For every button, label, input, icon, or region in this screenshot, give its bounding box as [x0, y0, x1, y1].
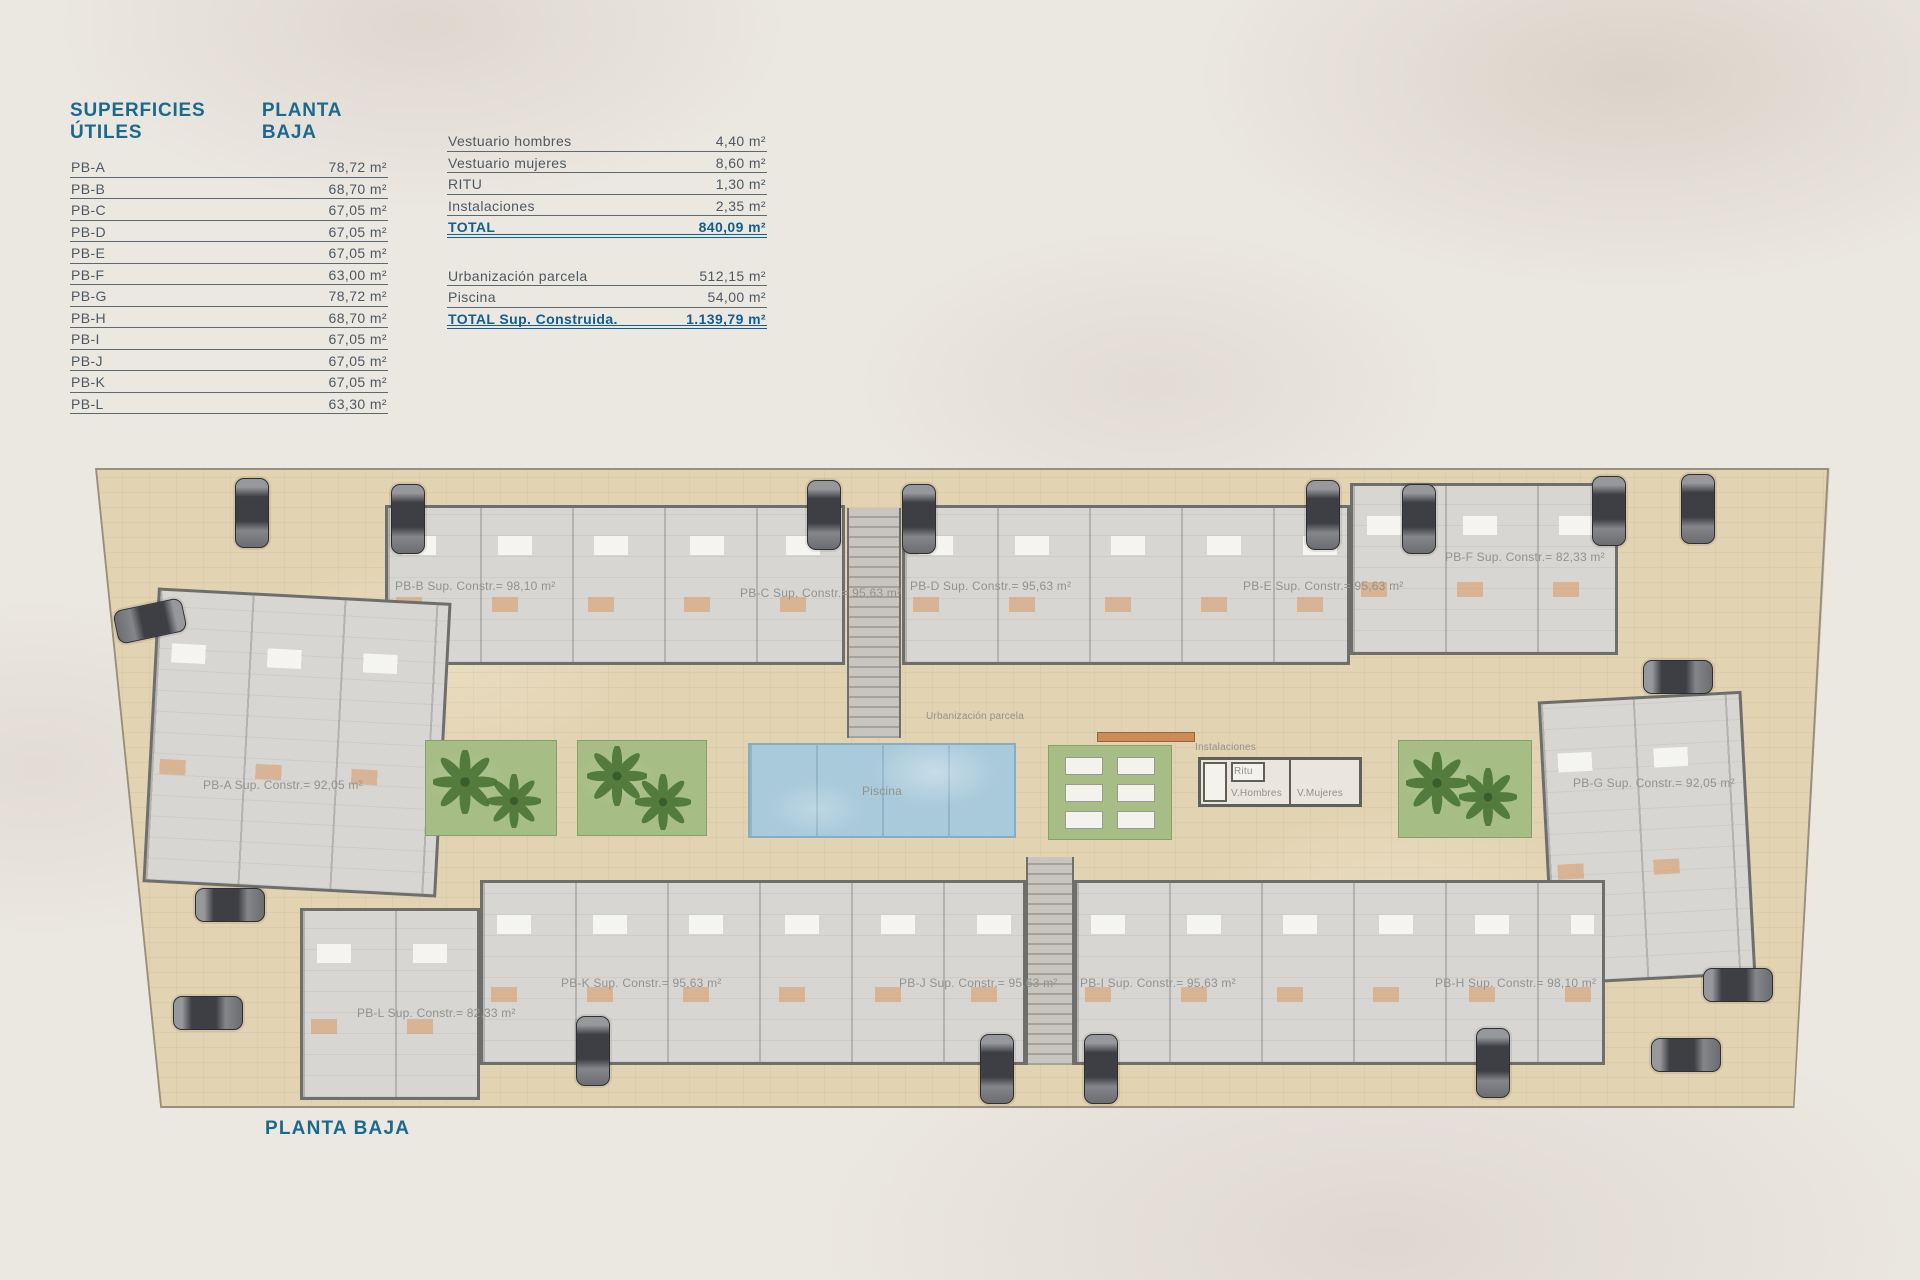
row-label: Vestuario hombres: [448, 133, 572, 149]
pool: Piscina: [748, 743, 1016, 838]
car: [1402, 484, 1436, 554]
row-value: 54,00 m²: [708, 289, 766, 305]
row-label: PB-H: [71, 310, 106, 326]
page-title: PLANTA BAJA: [265, 1118, 410, 1140]
car: [1476, 1028, 1510, 1098]
car: [1084, 1034, 1118, 1104]
unit-label-pb-l: PB-L Sup. Constr.= 82,33 m²: [357, 1006, 516, 1020]
table-row: Urbanización parcela512,15 m²: [447, 265, 767, 287]
ritu-label: Ritu: [1234, 766, 1253, 777]
useful-areas-subtitle: PLANTA BAJA: [262, 100, 388, 144]
car: [1703, 968, 1773, 1002]
row-value: 67,05 m²: [329, 202, 387, 218]
unit-label-pb-f: PB-F Sup. Constr.= 82,33 m²: [1445, 550, 1605, 564]
sun-lounger: [1065, 757, 1103, 775]
row-label: PB-C: [71, 202, 106, 218]
bench: [1097, 732, 1195, 742]
urbanizacion-label: Urbanización parcela: [865, 711, 1085, 722]
table-row: PB-K67,05 m²: [70, 371, 388, 393]
table-row: PB-D67,05 m²: [70, 221, 388, 243]
sun-lounger: [1117, 811, 1155, 829]
stair-corridor-bottom: [1026, 857, 1074, 1065]
row-label: Urbanización parcela: [448, 268, 588, 284]
row-label: PB-B: [71, 181, 105, 197]
car: [173, 996, 243, 1030]
table-row: PB-G78,72 m²: [70, 285, 388, 307]
total-label: TOTAL Sup. Construida.: [448, 311, 618, 327]
car: [1681, 474, 1715, 544]
vestuario-mujeres-label: V.Mujeres: [1297, 788, 1343, 799]
sun-lounger: [1117, 784, 1155, 802]
useful-areas-header: SUPERFICIES ÚTILES PLANTA BAJA: [70, 100, 388, 144]
unit-label-pb-j: PB-J Sup. Constr.= 95,63 m²: [899, 976, 1057, 990]
row-label: PB-D: [71, 224, 106, 240]
table-row: PB-H68,70 m²: [70, 307, 388, 329]
row-value: 63,30 m²: [329, 396, 387, 412]
plan-sheet: SUPERFICIES ÚTILES PLANTA BAJA PB-A78,72…: [0, 0, 1920, 1280]
row-label: PB-I: [71, 331, 100, 347]
floor-plan: Piscina Instalaciones Ritu V.Hombres V.M…: [95, 468, 1830, 1108]
table-row: PB-A78,72 m²: [70, 156, 388, 178]
unit-label-pb-b: PB-B Sup. Constr.= 98,10 m²: [395, 579, 555, 593]
row-label: PB-K: [71, 374, 105, 390]
pool-label: Piscina: [862, 784, 902, 798]
row-label: PB-F: [71, 267, 105, 283]
row-label: Instalaciones: [448, 198, 535, 214]
sun-lounger: [1065, 784, 1103, 802]
facilities-block: Ritu V.Hombres V.Mujeres: [1198, 757, 1362, 807]
car: [195, 888, 265, 922]
row-value: 67,05 m²: [329, 374, 387, 390]
table-row: PB-F63,00 m²: [70, 264, 388, 286]
unit-label-pb-d: PB-D Sup. Constr.= 95,63 m²: [910, 579, 1071, 593]
unit-block-i-h: [1074, 880, 1605, 1065]
table-row: PB-C67,05 m²: [70, 199, 388, 221]
total-row: TOTAL840,09 m²: [447, 216, 767, 238]
total-value: 1.139,79 m²: [686, 311, 766, 327]
table-row: Vestuario mujeres8,60 m²: [447, 152, 767, 174]
row-value: 8,60 m²: [716, 155, 766, 171]
table-row: PB-J67,05 m²: [70, 350, 388, 372]
row-value: 67,05 m²: [329, 353, 387, 369]
row-label: Vestuario mujeres: [448, 155, 567, 171]
row-value: 63,00 m²: [329, 267, 387, 283]
unit-block-f: [1350, 483, 1618, 655]
total-value: 840,09 m²: [699, 219, 766, 235]
car: [807, 480, 841, 550]
row-value: 67,05 m²: [329, 224, 387, 240]
palm-tree-icon: [487, 774, 541, 828]
table-row: PB-I67,05 m²: [70, 328, 388, 350]
total-row: TOTAL Sup. Construida.1.139,79 m²: [447, 308, 767, 330]
unit-label-pb-k: PB-K Sup. Constr.= 95,63 m²: [561, 976, 721, 990]
row-value: 512,15 m²: [699, 268, 766, 284]
sun-lounger-area: [1048, 745, 1172, 840]
useful-areas-table: SUPERFICIES ÚTILES PLANTA BAJA PB-A78,72…: [70, 100, 388, 414]
car: [576, 1016, 610, 1086]
table-row: Vestuario hombres4,40 m²: [447, 130, 767, 152]
row-value: 2,35 m²: [716, 198, 766, 214]
row-label: PB-E: [71, 245, 105, 261]
unit-label-pb-c: PB-C Sup. Constr.= 95,63 m²: [740, 586, 901, 600]
row-value: 1,30 m²: [716, 176, 766, 192]
row-label: Piscina: [448, 289, 496, 305]
unit-label-pb-g: PB-G Sup. Constr.= 92,05 m²: [1573, 776, 1735, 790]
palm-tree-icon: [635, 774, 691, 830]
row-label: PB-J: [71, 353, 103, 369]
row-value: 4,40 m²: [716, 133, 766, 149]
table-row: PB-B68,70 m²: [70, 178, 388, 200]
stair-corridor-top: [847, 508, 901, 738]
unit-label-pb-i: PB-I Sup. Constr.= 95,63 m²: [1080, 976, 1236, 990]
car: [1306, 480, 1340, 550]
table-gap: [447, 238, 767, 265]
row-value: 68,70 m²: [329, 181, 387, 197]
car: [1592, 476, 1626, 546]
vestuario-hombres-label: V.Hombres: [1231, 788, 1282, 799]
unit-block-k-j: [480, 880, 1026, 1065]
row-value: 67,05 m²: [329, 331, 387, 347]
car: [902, 484, 936, 554]
sun-lounger: [1117, 757, 1155, 775]
facilities-label: Instalaciones: [1195, 742, 1256, 753]
row-label: RITU: [448, 176, 482, 192]
sun-lounger: [1065, 811, 1103, 829]
table-row: Piscina54,00 m²: [447, 286, 767, 308]
table-row: PB-L63,30 m²: [70, 393, 388, 415]
table-row: Instalaciones2,35 m²: [447, 195, 767, 217]
unit-block-a: [142, 588, 451, 898]
row-value: 78,72 m²: [329, 159, 387, 175]
row-value: 68,70 m²: [329, 310, 387, 326]
wall-divider: [1289, 760, 1291, 804]
palm-tree-icon: [1459, 768, 1517, 826]
instalaciones-room: [1203, 762, 1227, 802]
row-label: PB-L: [71, 396, 104, 412]
row-label: PB-A: [71, 159, 105, 175]
unit-block-l: [300, 908, 480, 1100]
car: [1651, 1038, 1721, 1072]
table-row: PB-E67,05 m²: [70, 242, 388, 264]
total-label: TOTAL: [448, 219, 495, 235]
row-value: 67,05 m²: [329, 245, 387, 261]
table-row: RITU1,30 m²: [447, 173, 767, 195]
unit-label-pb-a: PB-A Sup. Constr.= 92,05 m²: [203, 778, 363, 792]
common-areas-table: Vestuario hombres4,40 m² Vestuario mujer…: [447, 130, 767, 329]
car: [980, 1034, 1014, 1104]
row-value: 78,72 m²: [329, 288, 387, 304]
unit-label-pb-h: PB-H Sup. Constr.= 98,10 m²: [1435, 976, 1596, 990]
car: [235, 478, 269, 548]
car: [391, 484, 425, 554]
row-label: PB-G: [71, 288, 107, 304]
car: [1643, 660, 1713, 694]
unit-label-pb-e: PB-E Sup. Constr.= 95,63 m²: [1243, 579, 1403, 593]
useful-areas-title: SUPERFICIES ÚTILES: [70, 100, 262, 144]
